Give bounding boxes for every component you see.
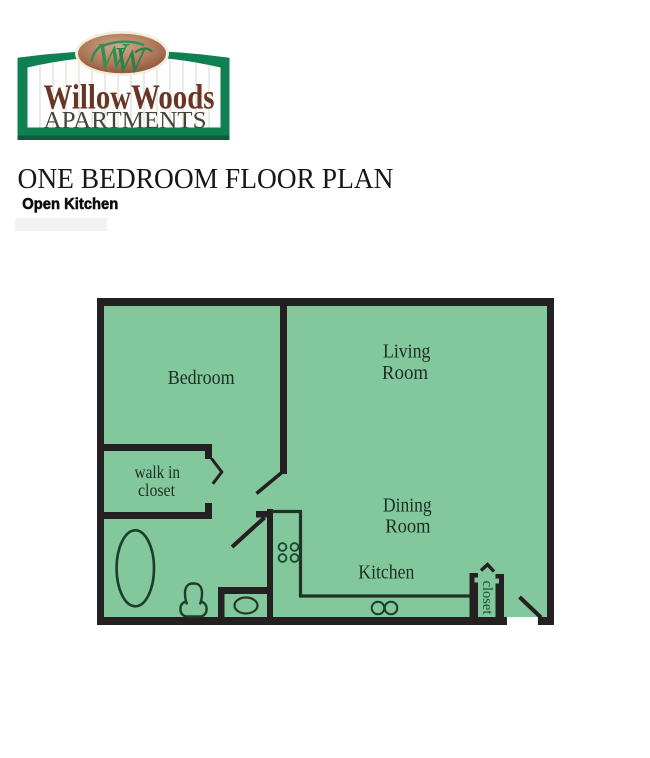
svg-text:closet: closet bbox=[138, 480, 175, 500]
svg-text:walk in: walk in bbox=[135, 462, 181, 482]
svg-text:ONE BEDROOM FLOOR PLAN: ONE BEDROOM FLOOR PLAN bbox=[18, 163, 394, 195]
svg-text:Room: Room bbox=[385, 516, 431, 538]
svg-text:Living: Living bbox=[383, 341, 431, 363]
svg-text:Dining: Dining bbox=[383, 495, 432, 517]
svg-text:W: W bbox=[114, 41, 148, 82]
svg-text:Room: Room bbox=[382, 362, 429, 384]
svg-text:Kitchen: Kitchen bbox=[358, 561, 414, 583]
svg-text:Bedroom: Bedroom bbox=[168, 367, 235, 389]
svg-text:Open Kitchen: Open Kitchen bbox=[22, 196, 118, 213]
svg-text:APARTMENTS: APARTMENTS bbox=[44, 108, 207, 134]
svg-text:closet: closet bbox=[479, 581, 495, 615]
